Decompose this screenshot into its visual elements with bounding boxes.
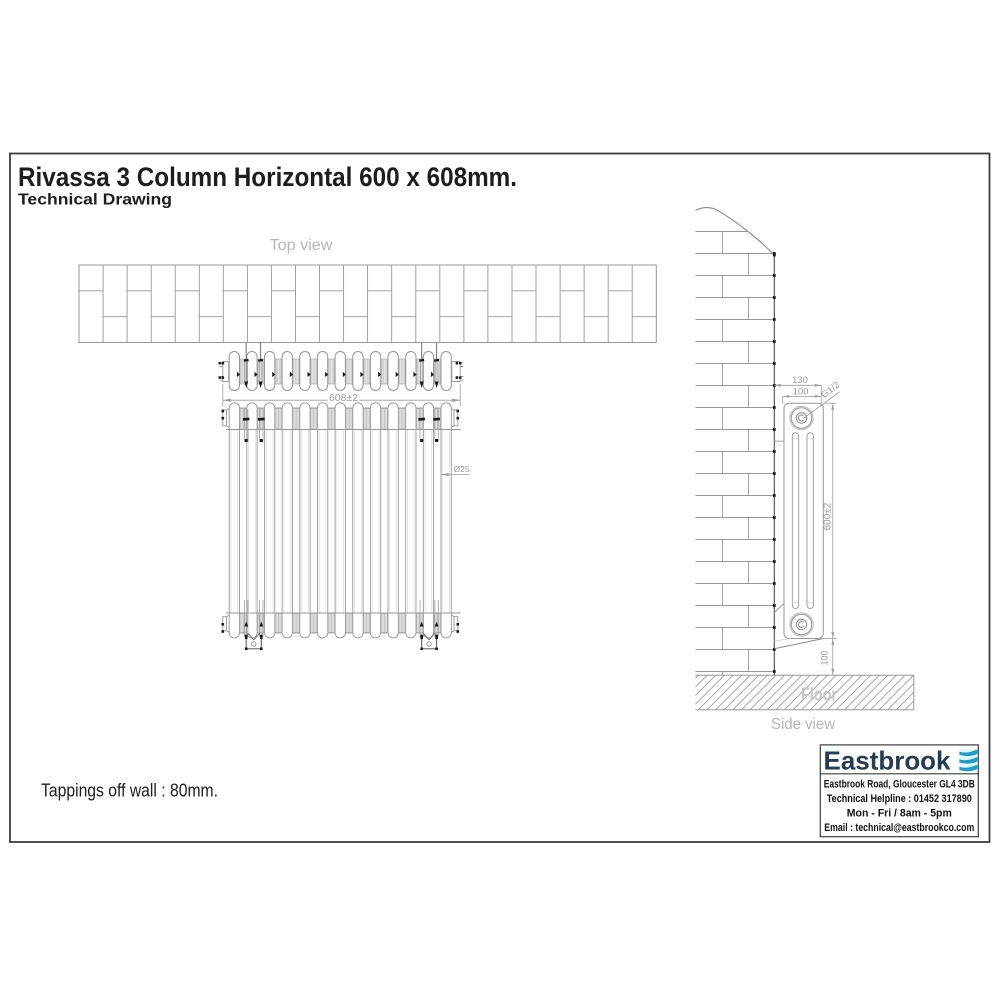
svg-text:Top view: Top view [270, 237, 333, 254]
svg-text:Email : technical@eastbrookco.: Email : technical@eastbrookco.com [824, 822, 974, 834]
svg-text:Mon - Fri / 8am - 5pm: Mon - Fri / 8am - 5pm [847, 808, 952, 820]
svg-text:100: 100 [793, 386, 809, 397]
svg-text:608±2: 608±2 [329, 392, 358, 404]
svg-text:100: 100 [820, 650, 830, 665]
svg-text:Floor: Floor [801, 685, 837, 705]
svg-text:Side view: Side view [771, 716, 835, 733]
svg-text:Eastbrook: Eastbrook [824, 746, 952, 776]
svg-text:130: 130 [792, 375, 808, 386]
svg-text:Ø25: Ø25 [454, 464, 470, 474]
svg-text:Eastbrook Road, Gloucester GL4: Eastbrook Road, Gloucester GL4 3DB [824, 779, 975, 791]
svg-text:Technical Helpline : 01452 317: Technical Helpline : 01452 317890 [827, 793, 972, 805]
svg-text:Tappings off wall : 80mm.: Tappings off wall : 80mm. [41, 781, 218, 801]
svg-text:Rivassa 3 Column Horizontal 60: Rivassa 3 Column Horizontal 600 x 608mm. [18, 162, 517, 192]
svg-text:G1/2: G1/2 [819, 380, 842, 401]
svg-text:Technical Drawing: Technical Drawing [18, 192, 172, 209]
svg-text:600±2: 600±2 [823, 502, 834, 530]
